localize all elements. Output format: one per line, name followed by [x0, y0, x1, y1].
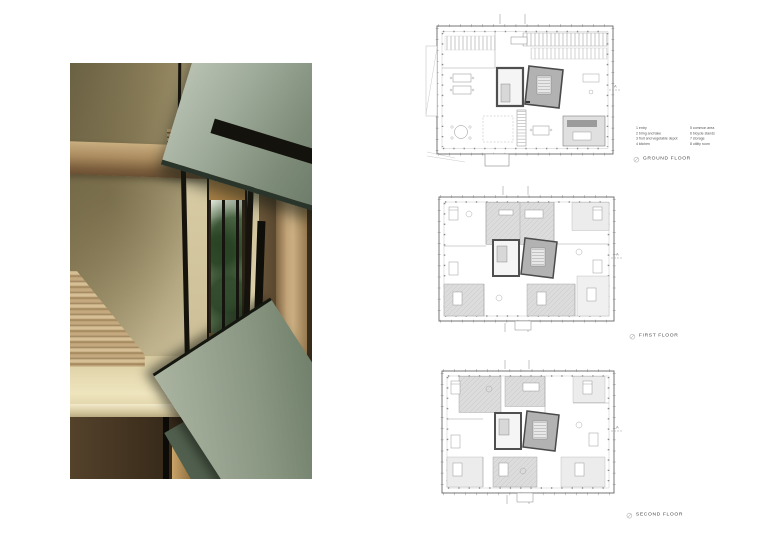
- section-marker-label: A: [616, 252, 619, 257]
- floor-label-text: SECOND FLOOR: [636, 511, 683, 517]
- floor-label-text: FIRST FLOOR: [639, 332, 679, 338]
- presentation-page: A: [0, 0, 780, 551]
- second-floor-caption: SECOND FLOOR: [626, 511, 683, 517]
- photo-window-mullion: [222, 200, 225, 333]
- section-marker-label: A: [616, 425, 619, 430]
- ground-floor-caption: GROUND FLOOR: [633, 155, 691, 161]
- ground-floor-plan: A: [425, 10, 625, 170]
- photo-underfloor-post: [163, 417, 169, 479]
- section-marker-label: A: [614, 84, 617, 89]
- first-floor-plan: A: [429, 184, 624, 334]
- model-photo: [70, 63, 312, 479]
- legend-item: 4 kitchen: [636, 142, 686, 147]
- north-arrow-icon: [629, 333, 636, 340]
- photo-window-mullion: [236, 200, 240, 333]
- floor-label-text: GROUND FLOOR: [643, 155, 691, 161]
- north-arrow-icon: [626, 512, 633, 519]
- legend-item: 8 utility room: [690, 142, 740, 147]
- second-floor-plan: A: [433, 359, 623, 507]
- photo-window-with-trees: [211, 200, 243, 333]
- plan-legend: 1 entry 2 bring and take 3 fruit and veg…: [636, 126, 740, 147]
- north-arrow-icon: [633, 156, 640, 163]
- first-floor-caption: FIRST FLOOR: [629, 332, 678, 338]
- legend-column-2: 5 common area 6 bicycle stands 7 storage…: [690, 126, 740, 147]
- legend-column-1: 1 entry 2 bring and take 3 fruit and veg…: [636, 126, 686, 147]
